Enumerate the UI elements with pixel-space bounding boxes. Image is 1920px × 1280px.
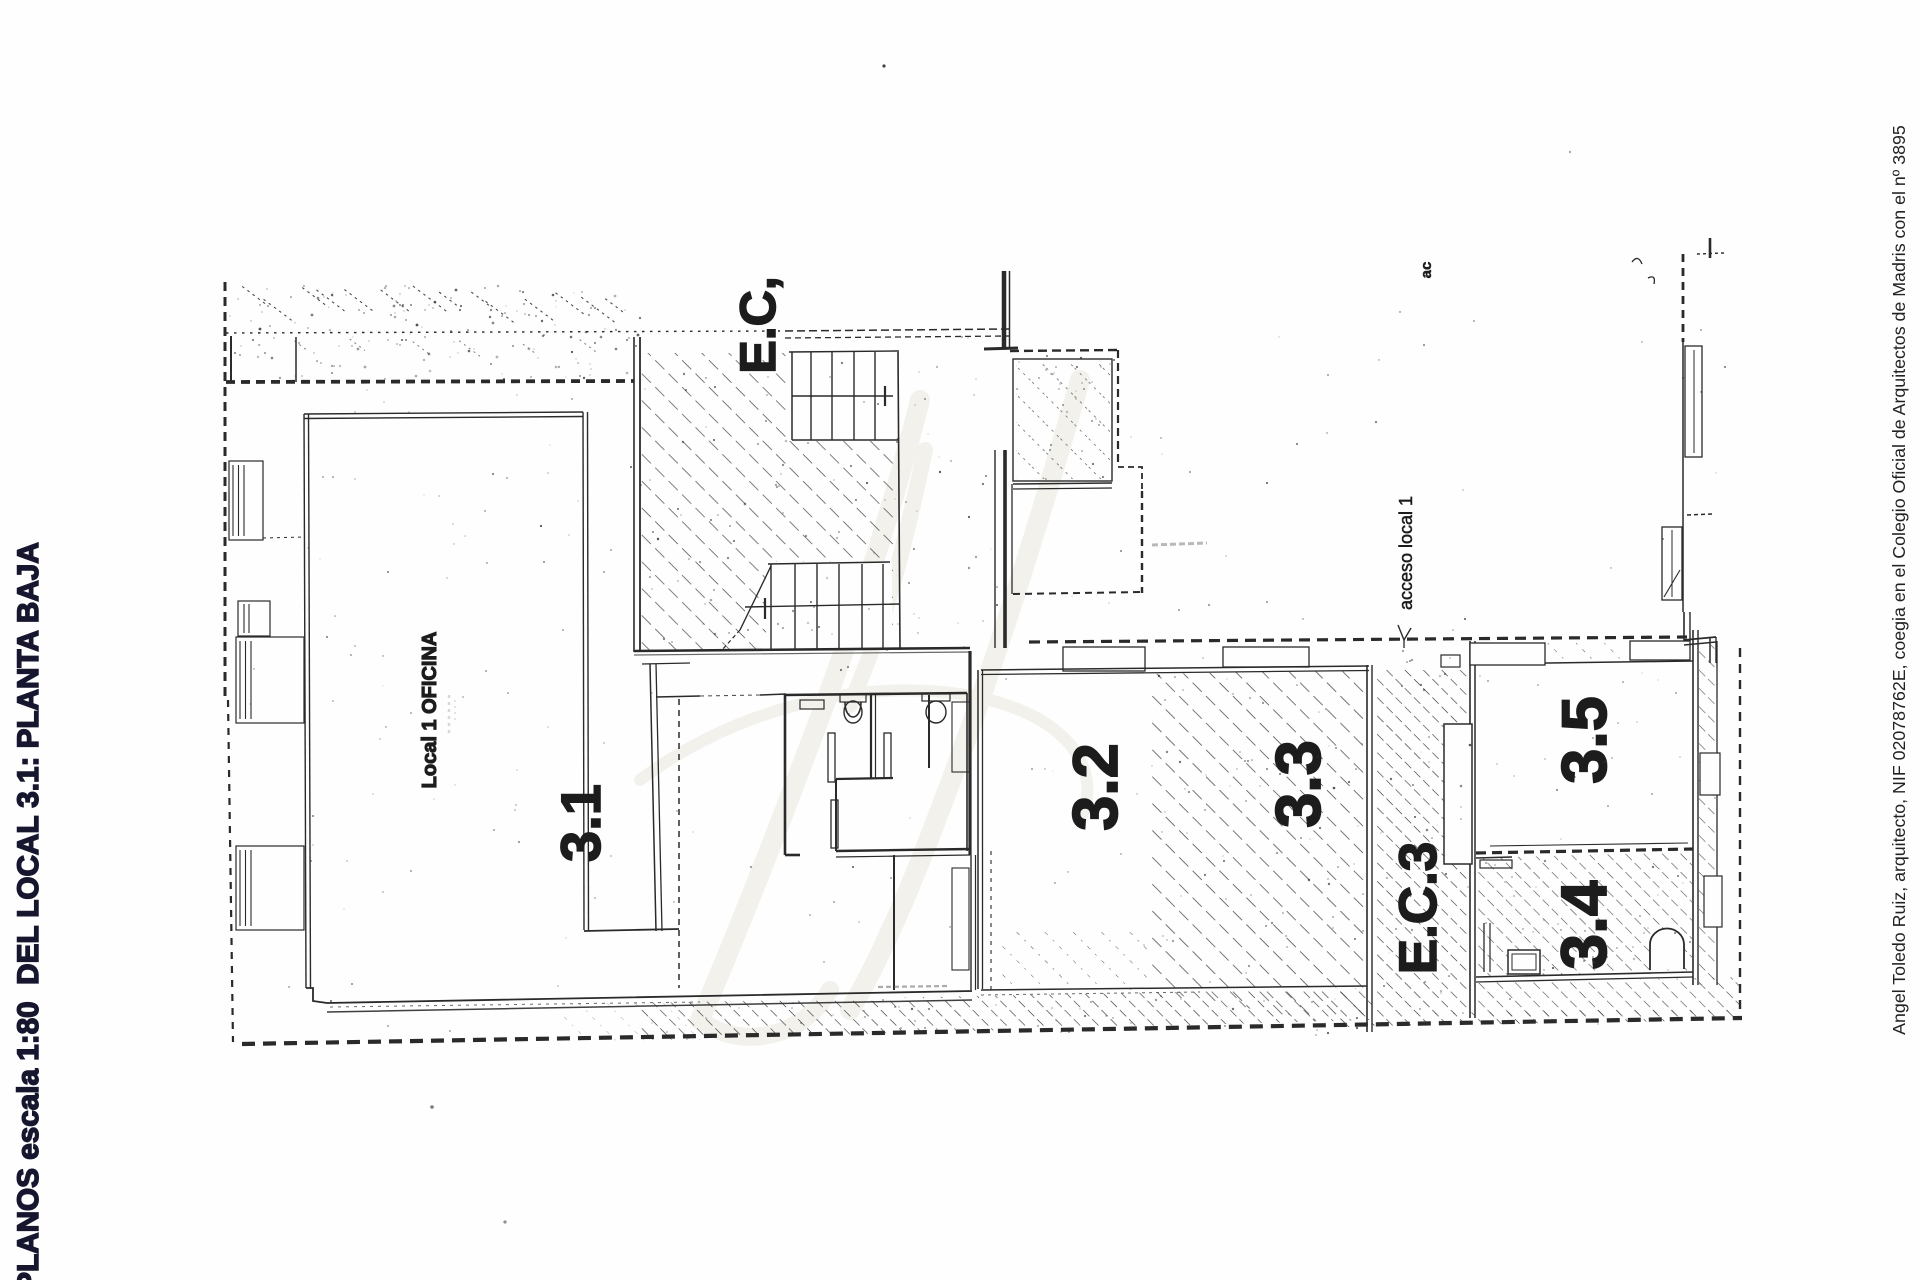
svg-text:3.2: 3.2: [1061, 743, 1131, 831]
svg-text:acceso local 1: acceso local 1: [1396, 496, 1416, 610]
svg-text:Local 1 OFICINA: Local 1 OFICINA: [419, 632, 441, 789]
svg-text:Angel Toledo Ruiz, arquitecto,: Angel Toledo Ruiz, arquitecto, NIF 02078…: [1889, 125, 1909, 1035]
svg-text:3.4: 3.4: [1548, 880, 1620, 969]
svg-text:ac: ac: [1418, 262, 1435, 279]
svg-text:3.3: 3.3: [1264, 740, 1334, 828]
svg-text:E.C,: E.C,: [730, 276, 786, 373]
svg-text:E.C.3: E.C.3: [1389, 842, 1448, 975]
svg-text:3.1: 3.1: [549, 784, 612, 862]
svg-text:3.5: 3.5: [1550, 696, 1620, 784]
svg-text:PLANOS escala 1:80 DEL LOCAL: PLANOS escala 1:80 DEL LOCAL 3.1: PLANTA…: [12, 542, 45, 1280]
